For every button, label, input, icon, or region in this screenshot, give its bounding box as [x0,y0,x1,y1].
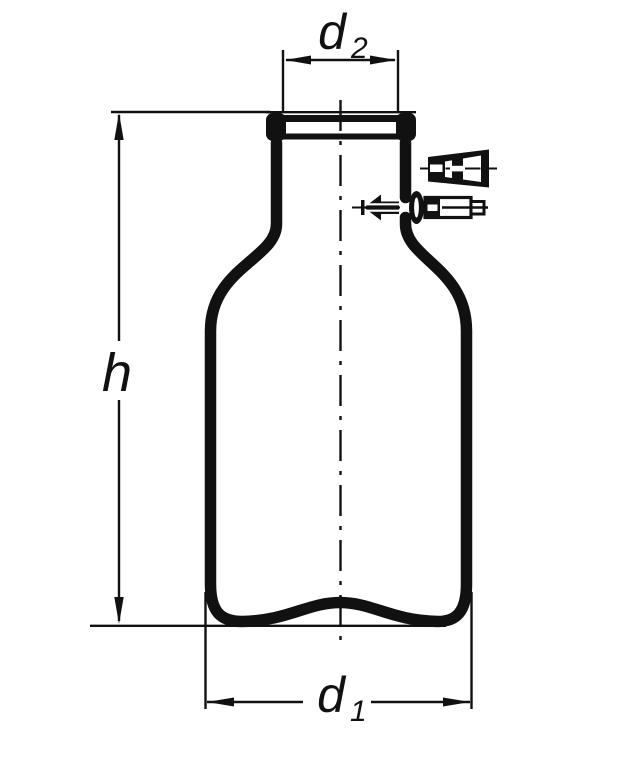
d2-arrow-right [370,56,396,65]
screw-cap [420,150,497,188]
d2-arrow-left [285,56,311,65]
d1-arrow-left [207,698,234,707]
dimension-h: h [102,112,270,624]
cap-slot [430,165,443,173]
screw-connector [409,191,488,224]
nipple-tip [361,200,365,215]
d1-arrow-right [443,698,470,707]
d1-label-subscript: 1 [350,695,367,728]
d2-label: d [318,4,348,60]
bottle-technical-drawing: d 2 h d 1 [0,0,628,767]
dimension-d2: d 2 [283,4,398,111]
connector-head-slot [428,205,438,212]
d2-label-subscript: 2 [350,32,368,65]
cap-rib-gap [451,166,465,172]
h-arrow-up [114,113,123,140]
dimension-d1: d 1 [206,592,472,728]
h-arrow-down [114,597,123,624]
figure-canvas: d 2 h d 1 [0,0,628,767]
nipple-cone [364,195,381,221]
h-label: h [102,343,132,403]
hose-nipple-assembly [352,195,400,221]
d1-label: d [317,667,347,723]
connector-flange-slit [414,198,419,218]
